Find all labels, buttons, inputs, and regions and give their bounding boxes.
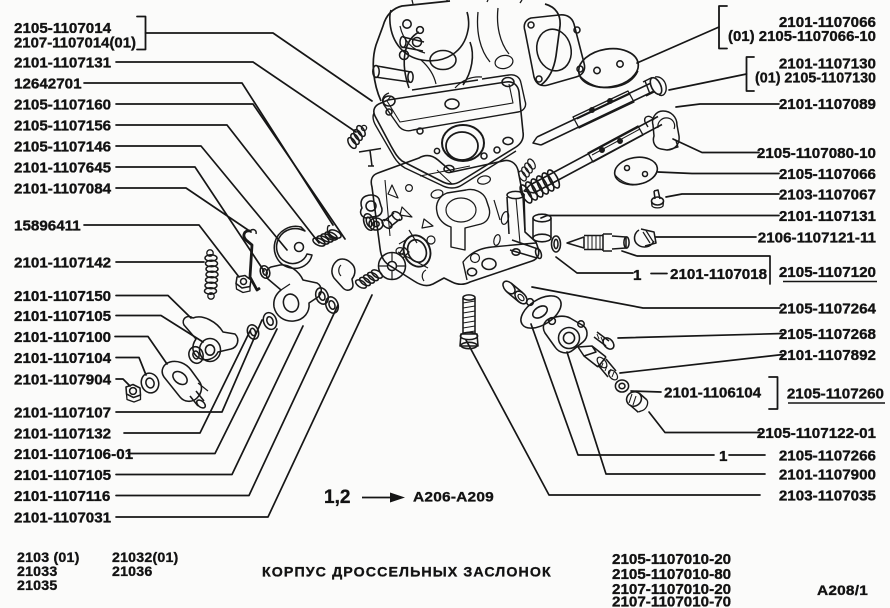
svg-text:2101-1107105: 2101-1107105 <box>14 467 112 484</box>
svg-text:2107-1107014(01): 2107-1107014(01) <box>14 35 136 52</box>
svg-text:2101-1107018: 2101-1107018 <box>670 266 767 283</box>
svg-text:2101-1107031: 2101-1107031 <box>14 510 112 527</box>
svg-text:2101-1107131: 2101-1107131 <box>779 208 877 225</box>
svg-text:21036: 21036 <box>112 564 152 580</box>
svg-text:2101-1107904: 2101-1107904 <box>14 372 112 389</box>
svg-text:2101-1107100: 2101-1107100 <box>14 329 111 346</box>
svg-text:2101-1107116: 2101-1107116 <box>14 488 110 505</box>
svg-text:2101-1107131: 2101-1107131 <box>14 55 112 72</box>
svg-text:2105-1107160: 2105-1107160 <box>14 97 111 114</box>
svg-text:2101-1107142: 2101-1107142 <box>14 255 111 272</box>
svg-text:2101-1107892: 2101-1107892 <box>779 347 876 364</box>
svg-text:2101-1106104: 2101-1106104 <box>664 385 762 402</box>
svg-text:(01) 2105-1107130: (01) 2105-1107130 <box>755 70 876 87</box>
svg-text:2107-1107010-70: 2107-1107010-70 <box>612 594 731 608</box>
svg-text:2101-1107089: 2101-1107089 <box>779 96 876 113</box>
svg-text:2101-1107104: 2101-1107104 <box>14 350 112 367</box>
svg-text:2101-1107105: 2101-1107105 <box>14 308 112 325</box>
svg-text:2101-1107107: 2101-1107107 <box>14 405 111 422</box>
svg-text:12642701: 12642701 <box>14 76 82 93</box>
svg-text:1,2: 1,2 <box>324 487 350 508</box>
svg-text:1: 1 <box>633 267 642 284</box>
svg-text:1: 1 <box>719 448 728 465</box>
svg-text:2105-1107260: 2105-1107260 <box>787 386 884 403</box>
svg-text:2101-1107900: 2101-1107900 <box>779 467 876 484</box>
svg-text:А206-А209: А206-А209 <box>413 490 494 506</box>
svg-text:2105-1107146: 2105-1107146 <box>14 139 111 156</box>
svg-text:2105-1107268: 2105-1107268 <box>779 326 876 343</box>
svg-text:(01) 2105-1107066-10: (01) 2105-1107066-10 <box>728 28 876 45</box>
svg-text:2101-1107150: 2101-1107150 <box>14 288 111 305</box>
svg-text:2105-1107066: 2105-1107066 <box>779 166 876 183</box>
svg-text:15896411: 15896411 <box>14 218 81 235</box>
svg-text:2105-1107122-01: 2105-1107122-01 <box>757 425 877 442</box>
svg-text:2105-1107156: 2105-1107156 <box>14 118 111 135</box>
svg-text:2101-1107132: 2101-1107132 <box>14 426 111 443</box>
svg-text:2105-1107266: 2105-1107266 <box>779 448 876 465</box>
svg-text:А208/1: А208/1 <box>817 583 868 599</box>
svg-text:2103-1107067: 2103-1107067 <box>779 187 876 204</box>
svg-text:2106-1107121-11: 2106-1107121-11 <box>758 230 877 247</box>
svg-text:21035: 21035 <box>17 578 57 594</box>
svg-text:2105-1107264: 2105-1107264 <box>779 301 877 318</box>
svg-text:2103-1107035: 2103-1107035 <box>779 488 877 505</box>
svg-text:2101-1107645: 2101-1107645 <box>14 160 112 177</box>
svg-text:КОРПУС ДРОССЕЛЬНЫХ ЗАСЛОНОК: КОРПУС ДРОССЕЛЬНЫХ ЗАСЛОНОК <box>262 565 552 581</box>
svg-text:2105-1107120: 2105-1107120 <box>779 264 876 281</box>
svg-text:2101-1107084: 2101-1107084 <box>14 181 112 198</box>
svg-text:2101-1107106-01: 2101-1107106-01 <box>14 446 134 463</box>
svg-text:2105-1107080-10: 2105-1107080-10 <box>757 145 876 162</box>
